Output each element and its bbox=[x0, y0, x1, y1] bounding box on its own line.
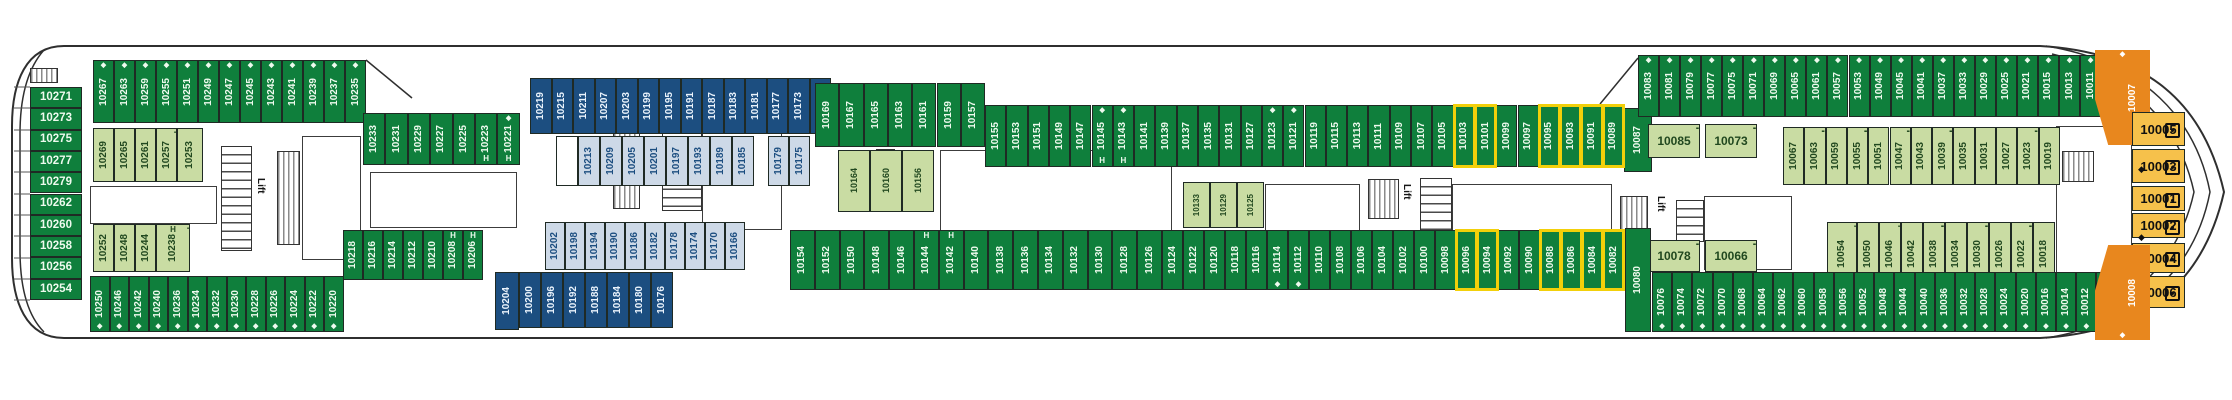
diamond-icon: ◆ bbox=[189, 323, 207, 330]
cabin-number: 10240 bbox=[153, 290, 163, 318]
cabin-10118: 10118 bbox=[1225, 230, 1246, 290]
cabin-number: 10174 bbox=[690, 232, 700, 260]
cabin-10187: 10187 bbox=[702, 78, 724, 134]
cabin-number: 10248 bbox=[120, 234, 130, 262]
cabin-10099: 10099 bbox=[1496, 105, 1517, 167]
cabin-blank bbox=[556, 136, 578, 186]
cabin-number: 10180 bbox=[635, 286, 645, 314]
diamond-icon: ◆ bbox=[1916, 323, 1934, 330]
cabin-number: 10185 bbox=[738, 147, 748, 175]
cabin-10057: ◆10057 bbox=[1827, 55, 1848, 117]
cabin-number: 10104 bbox=[1378, 246, 1388, 274]
cabin-number: 10177 bbox=[772, 92, 782, 120]
cabin-number: 10193 bbox=[694, 147, 704, 175]
cabin-number: 10146 bbox=[897, 246, 907, 274]
diamond-icon: ◆ bbox=[1815, 323, 1833, 330]
cabin-number: 10109 bbox=[1395, 122, 1405, 150]
cabin-10073: ▪▪10073 bbox=[1705, 124, 1757, 158]
cabin-10107: 10107 bbox=[1411, 105, 1432, 167]
diamond-icon: ◆ bbox=[1774, 323, 1792, 330]
diamond-icon: ◆ bbox=[1754, 323, 1772, 330]
cabin-number: 10014 bbox=[2061, 288, 2071, 316]
cabin-number: 10247 bbox=[225, 78, 235, 106]
bed-config-icon: ▪▪ bbox=[1907, 129, 1909, 135]
cabin-10049: ◆10049 bbox=[1870, 55, 1891, 117]
cabin-number: 10086 bbox=[1567, 246, 1577, 274]
cabin-10021: ◆10021 bbox=[2017, 55, 2038, 117]
diamond-icon: ◆ bbox=[169, 323, 187, 330]
cabin-number: 10225 bbox=[459, 125, 469, 153]
cabin-10048: ◆10048 bbox=[1874, 272, 1894, 332]
bed-config-icon: ▪▪ bbox=[1941, 224, 1943, 230]
cabin-10152: 10152 bbox=[815, 230, 840, 290]
diamond-icon: ◆ bbox=[1955, 57, 1974, 64]
cabin-10233: 10233 bbox=[363, 113, 385, 165]
cabin-10055: ▪▪10055 bbox=[1847, 127, 1868, 185]
cabin-10114: ◆10114 bbox=[1267, 230, 1288, 290]
diamond-icon: ◆ bbox=[346, 62, 365, 69]
cabin-10263: ◆10263 bbox=[114, 60, 135, 123]
cabin-10111: 10111 bbox=[1368, 105, 1389, 167]
cabin-10165: 10165 bbox=[864, 83, 888, 147]
cabin-10071: ◆10071 bbox=[1743, 55, 1764, 117]
cabin-number: 10236 bbox=[173, 290, 183, 318]
cabin-number: 10102 bbox=[1399, 246, 1409, 274]
cabin-number: 10192 bbox=[569, 286, 579, 314]
cabin-number: 10048 bbox=[1879, 288, 1889, 316]
stairs-icon bbox=[277, 151, 300, 245]
cabin-number: 10084 bbox=[1588, 246, 1598, 274]
diamond-icon: ◆ bbox=[1807, 57, 1826, 64]
cabin-number: 10275 bbox=[40, 134, 72, 146]
cabin-number: 10224 bbox=[290, 290, 300, 318]
cabin-number: 10221 bbox=[504, 125, 514, 153]
cabin-number: 10201 bbox=[650, 147, 660, 175]
diamond-icon: ◆ bbox=[1835, 323, 1853, 330]
cabin-number: 10178 bbox=[670, 232, 680, 260]
cabin-10241: ◆10241 bbox=[282, 60, 303, 123]
cabin-10256: 10256 bbox=[30, 257, 82, 278]
cabin-10045: ◆10045 bbox=[1891, 55, 1912, 117]
cabin-number: 10098 bbox=[1441, 246, 1451, 274]
cabin-10095: 10095 bbox=[1539, 105, 1560, 167]
cabin-10192: 10192 bbox=[563, 272, 585, 328]
service-room-outline bbox=[1265, 184, 1360, 232]
cabin-10115: 10115 bbox=[1326, 105, 1347, 167]
cabin-10067: 10067 bbox=[1783, 127, 1804, 185]
diamond-icon: ◆ bbox=[130, 323, 148, 330]
bed-config-icon: ▪▪ bbox=[2034, 129, 2036, 135]
cabin-number: 10134 bbox=[1045, 246, 1055, 274]
cabin-number: 10028 bbox=[1980, 288, 1990, 316]
cabin-10258: 10258 bbox=[30, 236, 82, 257]
cabin-number: 10093 bbox=[1566, 122, 1576, 150]
bed-config-icon: ▪▪ bbox=[1696, 126, 1698, 132]
diamond-icon: ◆ bbox=[1956, 323, 1974, 330]
cabin-10015: ◆10015 bbox=[2038, 55, 2059, 117]
cabin-10104: 10104 bbox=[1372, 230, 1393, 290]
cabin-10231: 10231 bbox=[385, 113, 407, 165]
cabin-10189: 10189 bbox=[710, 136, 732, 186]
service-room-outline bbox=[370, 172, 517, 228]
stairs-icon bbox=[30, 68, 58, 83]
cabin-number: 10220 bbox=[329, 290, 339, 318]
cabin-10232: ◆10232 bbox=[207, 276, 227, 332]
cabin-number: 10258 bbox=[40, 241, 72, 253]
cabin-number: 10100 bbox=[1420, 246, 1430, 274]
cabin-10160: 10160 bbox=[870, 150, 902, 212]
cabin-number: 10033 bbox=[1959, 72, 1969, 100]
cabin-10105: 10105 bbox=[1432, 105, 1453, 167]
cabin-10234: ◆10234 bbox=[188, 276, 208, 332]
cabin-number: 10101 bbox=[1481, 122, 1491, 150]
cabin-number: 10060 bbox=[1798, 288, 1808, 316]
diamond-mark: ◆ bbox=[2138, 233, 2145, 242]
cabin-10222: ◆10222 bbox=[305, 276, 325, 332]
cabin-number: 10058 bbox=[1819, 288, 1829, 316]
diamond-icon: ◆ bbox=[325, 62, 344, 69]
cabin-number: 10067 bbox=[1789, 142, 1799, 170]
bed-config-icon: ▪▪ bbox=[1753, 126, 1755, 132]
cabin-number: 10049 bbox=[1875, 72, 1885, 100]
cabin-10212: 10212 bbox=[403, 230, 423, 280]
cabin-number: 10103 bbox=[1459, 122, 1469, 150]
cabin-10041: ◆10041 bbox=[1912, 55, 1933, 117]
cabin-10076: ◆10076 bbox=[1652, 272, 1672, 332]
cabin-number: 10138 bbox=[996, 246, 1006, 274]
cabin-10275: 10275 bbox=[30, 130, 82, 151]
cabin-number: 10139 bbox=[1161, 122, 1171, 150]
bed-config-icon: ▪ bbox=[1854, 224, 1855, 230]
cabin-10080: 10080 bbox=[1625, 228, 1651, 332]
diamond-icon: ◆ bbox=[1268, 281, 1287, 288]
cabin-number: 10122 bbox=[1189, 246, 1199, 274]
cabin-number: 10096 bbox=[1462, 246, 1472, 274]
cabin-10156: 10156 bbox=[902, 150, 934, 212]
cabin-number: 10188 bbox=[591, 286, 601, 314]
cabin-10053: ◆10053 bbox=[1849, 55, 1870, 117]
diamond-icon: ◆ bbox=[325, 323, 343, 330]
cabin-10064: ◆10064 bbox=[1753, 272, 1773, 332]
diamond-icon: ◆ bbox=[1681, 57, 1700, 64]
diamond-icon: ◆ bbox=[1673, 323, 1691, 330]
cabin-10013: ◆10013 bbox=[2059, 55, 2080, 117]
cabin-10188: 10188 bbox=[585, 272, 607, 328]
cabin-10180: 10180 bbox=[629, 272, 651, 328]
cabin-number: 10140 bbox=[971, 246, 981, 274]
cabin-10103: 10103 bbox=[1454, 105, 1475, 167]
diamond-icon: ◆ bbox=[1997, 57, 2016, 64]
bed-config-icon: ▪▪ bbox=[1985, 224, 1987, 230]
cabin-10254: 10254 bbox=[30, 279, 82, 300]
cabin-10083: ◆10083 bbox=[1638, 55, 1659, 117]
cabin-number: 10114 bbox=[1273, 246, 1283, 273]
cabin-number: 10215 bbox=[557, 92, 567, 120]
cabin-number: 10156 bbox=[914, 168, 923, 193]
diamond-icon: ◆ bbox=[1693, 323, 1711, 330]
cabin-10182: 10182 bbox=[645, 222, 665, 270]
diamond-icon: ◆ bbox=[2017, 323, 2035, 330]
cabin-number: 10041 bbox=[1917, 72, 1927, 100]
cabin-10215: 10215 bbox=[552, 78, 574, 134]
diamond-icon: ◆ bbox=[1702, 57, 1721, 64]
lift-shaft bbox=[221, 146, 252, 251]
cabin-10248: 10248 bbox=[114, 224, 135, 272]
cabin-10145: ◆H10145 bbox=[1092, 105, 1113, 167]
cabin-10191: 10191 bbox=[681, 78, 703, 134]
diamond-icon: ◆ bbox=[304, 62, 323, 69]
cabin-number: 10077 bbox=[1707, 72, 1717, 100]
lift-label: Lift bbox=[252, 178, 266, 220]
bed-config-icon: ▪ bbox=[174, 130, 175, 136]
cabin-10181: 10181 bbox=[745, 78, 767, 134]
cabin-number: 10066 bbox=[1714, 250, 1747, 262]
cabin-10065: ◆10065 bbox=[1785, 55, 1806, 117]
diamond-icon: ◆ bbox=[286, 323, 304, 330]
cabin-10139: 10139 bbox=[1155, 105, 1176, 167]
cabin-number: 10257 bbox=[162, 141, 172, 169]
cabin-number: 10095 bbox=[1544, 122, 1554, 150]
cabin-number: 10190 bbox=[610, 232, 620, 260]
cabin-number: 10246 bbox=[114, 290, 124, 318]
diamond-icon: ◆ bbox=[115, 62, 134, 69]
diamond-icon: ◆ bbox=[267, 323, 285, 330]
cabin-10135: 10135 bbox=[1198, 105, 1219, 167]
cabin-number: 10211 bbox=[579, 92, 589, 119]
cabin-10036: ◆10036 bbox=[1935, 272, 1955, 332]
cabin-number: 10209 bbox=[606, 147, 616, 175]
cabin-number: 10230 bbox=[231, 290, 241, 318]
diamond-icon: ◆ bbox=[2077, 323, 2095, 330]
cabin-number: 10198 bbox=[570, 232, 580, 260]
cabin-number: 10073 bbox=[1714, 135, 1747, 147]
cabin-10072: ◆10072 bbox=[1692, 272, 1712, 332]
cabin-number: 10161 bbox=[919, 101, 929, 129]
cabin-10137: 10137 bbox=[1177, 105, 1198, 167]
cabin-10037: ◆10037 bbox=[1933, 55, 1954, 117]
cabin-10220: ◆10220 bbox=[324, 276, 344, 332]
cabin-number: 10012 bbox=[2081, 288, 2091, 316]
cabin-10238: H▪10238 bbox=[156, 224, 190, 272]
cabin-number: 10116 bbox=[1252, 246, 1262, 273]
cabin-10098: 10098 bbox=[1435, 230, 1456, 290]
bed-config-icon: ▪ bbox=[1898, 224, 1899, 230]
diamond-mark: ◆ bbox=[2138, 165, 2145, 174]
accessible-cabin-mark: H bbox=[940, 232, 963, 240]
cabin-10210: 10210 bbox=[423, 230, 443, 280]
cabin-number: 10053 bbox=[1854, 72, 1864, 100]
suite-window-icon bbox=[2165, 193, 2180, 208]
cabin-10101: 10101 bbox=[1475, 105, 1496, 167]
cabin-10273: 10273 bbox=[30, 108, 82, 129]
cabin-number: 10129 bbox=[1220, 194, 1228, 216]
cabin-number: 10110 bbox=[1315, 246, 1325, 273]
cabin-number: 10255 bbox=[162, 78, 172, 106]
cabin-number: 10063 bbox=[1810, 142, 1820, 170]
cabin-10122: 10122 bbox=[1183, 230, 1204, 290]
bed-config-icon: ▪ bbox=[187, 226, 188, 232]
diamond-icon: ◆ bbox=[1714, 323, 1732, 330]
cabin-number: 10191 bbox=[686, 92, 696, 120]
diamond-icon: ◆ bbox=[2060, 57, 2079, 64]
cabin-number: 10130 bbox=[1095, 246, 1105, 274]
cabin-10051: 10051 bbox=[1868, 127, 1889, 185]
cabin-number: 10008 bbox=[2128, 279, 2138, 307]
cabin-10113: 10113 bbox=[1347, 105, 1368, 167]
cabin-number: 10252 bbox=[99, 234, 109, 262]
cabin-10089: 10089 bbox=[1603, 105, 1624, 167]
cabin-10125: 10125 bbox=[1237, 182, 1264, 228]
cabin-number: 10025 bbox=[2001, 72, 2011, 100]
cabin-number: 10153 bbox=[1012, 122, 1022, 150]
cabin-10134: 10134 bbox=[1038, 230, 1063, 290]
cabin-10097: 10097 bbox=[1518, 105, 1539, 167]
cabin-number: 10062 bbox=[1778, 288, 1788, 316]
accessible-cabin-mark: H bbox=[444, 232, 462, 240]
cabin-10159: 10159 bbox=[937, 83, 961, 147]
cabin-number: 10087 bbox=[1633, 126, 1643, 154]
cabin-number: 10262 bbox=[40, 198, 72, 210]
cabin-10246: ◆10246 bbox=[110, 276, 130, 332]
cabin-10131: 10131 bbox=[1219, 105, 1240, 167]
cabin-number: 10112 bbox=[1294, 246, 1304, 273]
cabin-10197: 10197 bbox=[666, 136, 688, 186]
cabin-number: 10183 bbox=[729, 92, 739, 120]
cabin-number: 10212 bbox=[408, 241, 418, 269]
cabin-number: 10020 bbox=[2021, 288, 2031, 316]
bed-config-icon: ▪▪ bbox=[1821, 129, 1823, 135]
cabin-number: 10047 bbox=[1895, 142, 1905, 170]
diamond-icon: ◆ bbox=[262, 62, 281, 69]
cabin-number: 10196 bbox=[547, 286, 557, 314]
cabin-10074: ◆10074 bbox=[1672, 272, 1692, 332]
cabin-10173: 10173 bbox=[788, 78, 810, 134]
cabin-10001: 10001 bbox=[2132, 186, 2185, 211]
cabin-10027: 10027 bbox=[1996, 127, 2017, 185]
cabin-number: 10091 bbox=[1587, 122, 1597, 150]
cabin-number: 10267 bbox=[99, 78, 109, 106]
cabin-number: 10031 bbox=[1980, 142, 1990, 170]
cabin-10167: 10167 bbox=[839, 83, 863, 147]
cabin-10208: H10208 bbox=[443, 230, 463, 280]
accessible-cabin-mark: H bbox=[464, 232, 482, 240]
cabin-number: 10165 bbox=[871, 101, 881, 129]
cabin-number: 10099 bbox=[1502, 122, 1512, 150]
cabin-10130: 10130 bbox=[1088, 230, 1113, 290]
diamond-icon: ◆ bbox=[1895, 323, 1913, 330]
cabin-10175: 10175 bbox=[789, 136, 810, 186]
cabin-10227: 10227 bbox=[430, 113, 452, 165]
cabin-10174: 10174 bbox=[685, 222, 705, 270]
stairs-icon bbox=[2062, 151, 2094, 182]
cabin-10183: 10183 bbox=[724, 78, 746, 134]
cabin-number: 10042 bbox=[1907, 240, 1917, 268]
cabin-number: 10244 bbox=[141, 234, 151, 262]
cabin-number: 10229 bbox=[414, 125, 424, 153]
cabin-10216: 10216 bbox=[363, 230, 383, 280]
cabin-number: 10019 bbox=[2044, 142, 2054, 170]
diamond-icon: ◆ bbox=[1913, 57, 1932, 64]
cabin-number: 10075 bbox=[1728, 72, 1738, 100]
cabin-number: 10181 bbox=[751, 92, 761, 120]
cabin-number: 10200 bbox=[525, 286, 535, 314]
cabin-number: 10250 bbox=[95, 290, 105, 318]
cabin-10239: ◆10239 bbox=[303, 60, 324, 123]
cabin-number: 10142 bbox=[946, 246, 956, 274]
cabin-number: 10157 bbox=[968, 101, 978, 129]
diamond-icon: ◆ bbox=[1871, 57, 1890, 64]
cabin-number: 10226 bbox=[270, 290, 280, 318]
accessible-cabin-mark: H bbox=[476, 155, 496, 163]
diamond-icon: ◆ bbox=[1976, 323, 1994, 330]
cabin-10025: ◆10025 bbox=[1996, 55, 2017, 117]
cabin-10081: ◆10081 bbox=[1659, 55, 1680, 117]
diamond-icon: ◆ bbox=[1263, 107, 1282, 114]
cabin-10224: ◆10224 bbox=[285, 276, 305, 332]
cabin-number: 10206 bbox=[468, 241, 478, 269]
cabin-10253: 10253 bbox=[177, 128, 203, 182]
cabin-10240: ◆10240 bbox=[149, 276, 169, 332]
cabin-10166: 10166 bbox=[725, 222, 745, 270]
cabin-number: 10059 bbox=[1831, 142, 1841, 170]
diamond-icon: ◆ bbox=[150, 323, 168, 330]
cabin-10031: 10031 bbox=[1975, 127, 1996, 185]
cabin-10033: ◆10033 bbox=[1954, 55, 1975, 117]
cabin-number: 10143 bbox=[1118, 122, 1128, 150]
cabin-number: 10261 bbox=[141, 141, 151, 169]
cabin-10059: 10059 bbox=[1826, 127, 1847, 185]
diamond-icon: ◆ bbox=[2095, 51, 2150, 58]
accessible-cabin-mark: H bbox=[157, 226, 189, 234]
cabin-10141: 10141 bbox=[1134, 105, 1155, 167]
cabin-number: 10072 bbox=[1697, 288, 1707, 316]
cabin-10228: ◆10228 bbox=[246, 276, 266, 332]
cabin-10127: 10127 bbox=[1241, 105, 1262, 167]
accessible-cabin-mark: H bbox=[1114, 157, 1133, 165]
cabin-number: 10271 bbox=[40, 92, 72, 104]
cabin-10147: 10147 bbox=[1070, 105, 1091, 167]
diamond-icon: ◆ bbox=[220, 62, 239, 69]
cabin-10184: 10184 bbox=[607, 272, 629, 328]
cabin-10023: ▪▪10023 bbox=[2017, 127, 2038, 185]
cabin-number: 10189 bbox=[716, 147, 726, 175]
cabin-number: 10054 bbox=[1837, 240, 1847, 268]
cabin-10077: ◆10077 bbox=[1701, 55, 1722, 117]
cabin-10261: 10261 bbox=[135, 128, 156, 182]
cabin-number: 10018 bbox=[2039, 240, 2049, 268]
cabin-10252: 10252 bbox=[93, 224, 114, 272]
cabin-10109: 10109 bbox=[1390, 105, 1411, 167]
diamond-icon: ◆ bbox=[91, 323, 109, 330]
cabin-10163: 10163 bbox=[888, 83, 912, 147]
cabin-number: 10235 bbox=[351, 78, 361, 106]
diamond-icon: ◆ bbox=[283, 62, 302, 69]
accessible-cabin-mark: H bbox=[1093, 157, 1112, 165]
cabin-10277: 10277 bbox=[30, 151, 82, 172]
cabin-10151: 10151 bbox=[1028, 105, 1049, 167]
cabin-10024: ◆10024 bbox=[1995, 272, 2015, 332]
cabin-number: 10119 bbox=[1310, 122, 1320, 149]
cabin-10019: 10019 bbox=[2039, 127, 2060, 185]
cabin-number: 10061 bbox=[1812, 72, 1822, 100]
cabin-number: 10079 bbox=[1686, 72, 1696, 100]
cabin-10110: 10110 bbox=[1309, 230, 1330, 290]
cabin-10063: ▪▪10063 bbox=[1804, 127, 1825, 185]
cabin-10150: 10150 bbox=[840, 230, 865, 290]
cabin-10112: ◆10112 bbox=[1288, 230, 1309, 290]
cabin-10052: ◆10052 bbox=[1854, 272, 1874, 332]
diamond-icon: ◆ bbox=[1660, 57, 1679, 64]
